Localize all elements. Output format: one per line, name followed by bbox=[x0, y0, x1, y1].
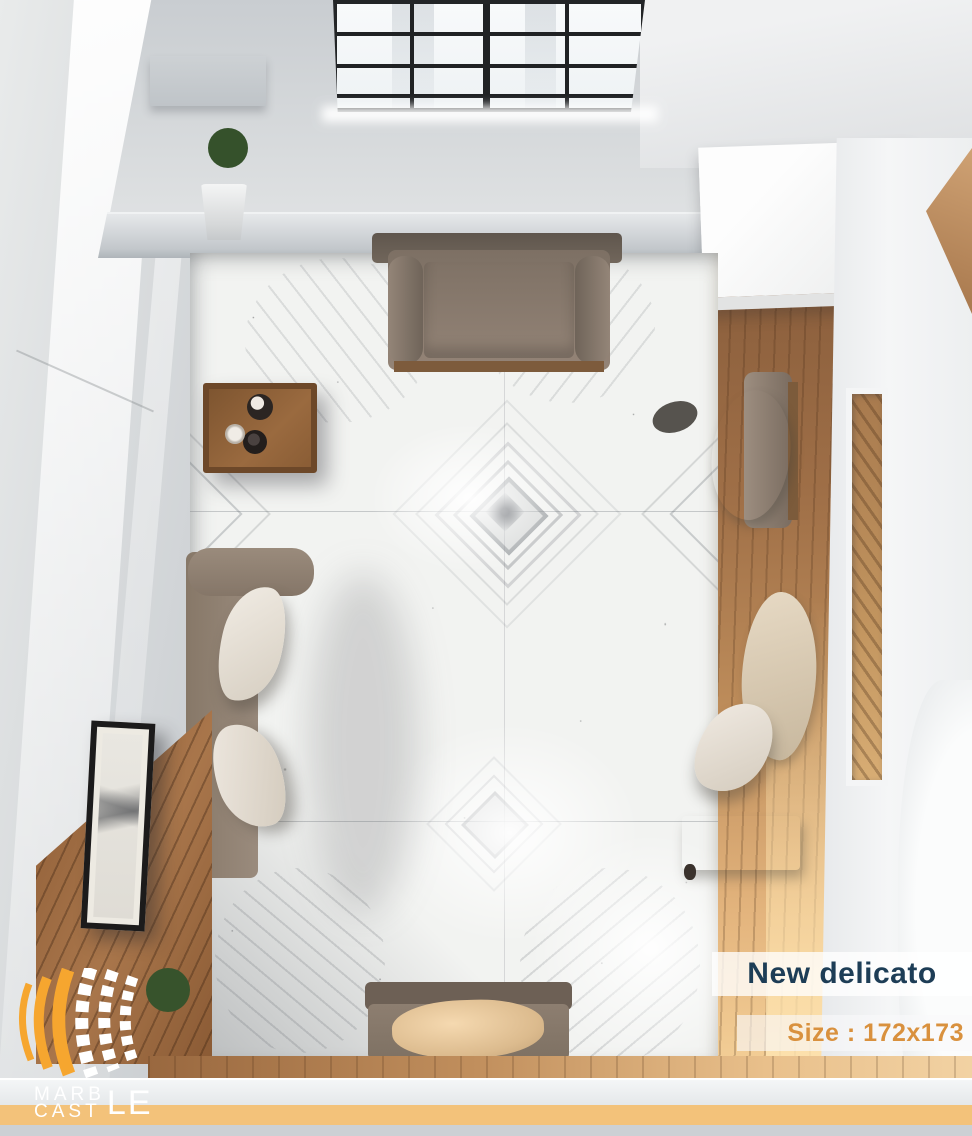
plant-upper bbox=[208, 128, 248, 168]
window-mullion bbox=[483, 4, 490, 108]
table-cup bbox=[243, 430, 267, 454]
table-saucer bbox=[225, 424, 245, 444]
left-sofa-armrest bbox=[188, 548, 314, 596]
sofa-shadow bbox=[308, 573, 418, 913]
sun-patch bbox=[370, 423, 570, 573]
size-label: Size : 172x173 bbox=[787, 1019, 964, 1048]
size-bar: Size : 172x173 bbox=[737, 1015, 972, 1051]
table-jar bbox=[247, 394, 273, 420]
window-mullion bbox=[337, 64, 641, 68]
shelf-top-left bbox=[150, 56, 266, 106]
caster-wheel bbox=[684, 864, 696, 880]
window-mullion bbox=[410, 4, 414, 108]
brand-wordmark: MARB CAST LE bbox=[34, 1086, 153, 1120]
top-armchair-seat bbox=[424, 262, 574, 358]
curved-marble-tile-stripes-icon bbox=[22, 968, 134, 1076]
footer-gray-strip bbox=[0, 1125, 972, 1136]
product-name-bar: New delicato bbox=[712, 952, 972, 996]
wood-recess-panel bbox=[846, 388, 888, 786]
skylight-glow bbox=[322, 106, 658, 122]
window-mullion bbox=[565, 4, 569, 108]
picture-frame bbox=[81, 720, 156, 931]
top-armchair-armrest bbox=[388, 256, 423, 364]
top-armchair-wood-base bbox=[394, 361, 604, 372]
brand-word-bottom: CAST bbox=[34, 1103, 105, 1120]
abstract-artwork bbox=[93, 733, 143, 919]
window-mullion bbox=[337, 32, 641, 36]
brand-logo-mark bbox=[12, 968, 160, 1086]
top-armchair-armrest bbox=[575, 256, 610, 364]
window-mullion bbox=[337, 94, 641, 98]
product-name-label: New delicato bbox=[747, 957, 936, 991]
brand-word-tail: LE bbox=[107, 1086, 153, 1120]
wood-sill-strip bbox=[148, 1056, 972, 1080]
skylight-window bbox=[333, 0, 645, 112]
side-table bbox=[682, 816, 800, 870]
glass-reflection bbox=[525, 4, 555, 108]
marble-ad-image: New delicato Size : 172x173 MARB CAST LE bbox=[0, 0, 972, 1136]
